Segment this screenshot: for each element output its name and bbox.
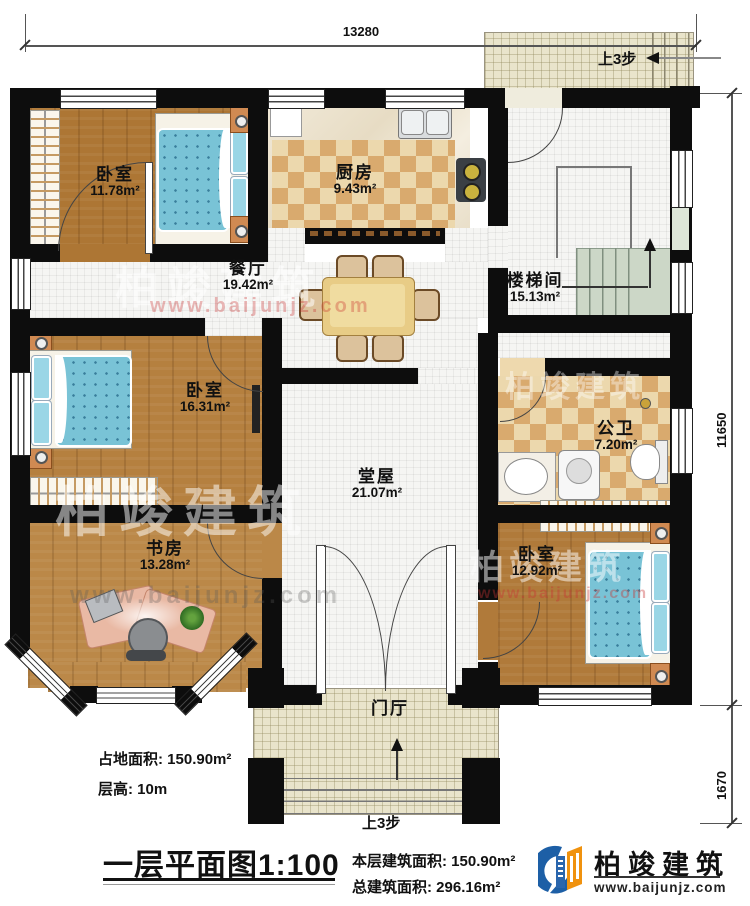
dim-line-right <box>731 93 733 823</box>
land-area-label: 占地面积: <box>98 751 163 768</box>
room-label-stairwell: 楼梯间 15.13m² <box>480 272 590 304</box>
window-bedroom3-south <box>538 687 652 706</box>
dim-right-lower-label: 1670 <box>714 748 729 800</box>
brand-url: www.baijunjz.com <box>594 880 727 895</box>
room-name: 卧室 <box>60 166 170 184</box>
room-area: 12.92m² <box>482 564 592 578</box>
floor-area-row: 本层建筑面积: 150.90m² <box>352 850 515 871</box>
room-name: 门厅 <box>348 700 432 718</box>
window-dining-west <box>11 258 31 310</box>
foyer-pillar-nw <box>248 668 284 708</box>
door-opening-bathroom <box>500 358 545 376</box>
dining-table-top <box>330 284 405 327</box>
sink-basin <box>401 110 424 135</box>
room-area: 9.43m² <box>300 182 410 196</box>
nightstand <box>650 663 670 687</box>
foyer-steps <box>283 778 467 814</box>
pillow <box>32 401 51 445</box>
wall-left <box>10 88 30 647</box>
room-area: 21.07m² <box>322 486 432 500</box>
lamp-icon <box>655 670 668 683</box>
pillow <box>652 552 669 602</box>
office-chair-back <box>126 650 166 661</box>
stove-burner-icon <box>463 183 481 201</box>
window-bedroom2-west <box>11 372 31 456</box>
dining-chair <box>336 334 368 362</box>
dim-ext-r2 <box>700 705 742 706</box>
wall-corner-ne <box>670 86 700 108</box>
hall-dining-opening <box>418 368 478 384</box>
dim-ext-top-right <box>696 14 697 52</box>
dim-ext-r3 <box>700 823 742 824</box>
lamp-icon <box>35 451 48 464</box>
room-label-foyer: 门厅 <box>348 700 432 718</box>
room-label-hall: 堂屋 21.07m² <box>322 468 432 500</box>
entry-door-leaf-right <box>446 545 456 694</box>
stove-burner-icon <box>463 163 481 181</box>
window-stairwell-east-a <box>671 150 693 208</box>
wall-bathroom-bedroom3 <box>498 505 670 523</box>
ceiling-lamp-icon <box>640 398 651 409</box>
entry-arrow-line <box>396 748 398 780</box>
wall-dining-hall <box>268 368 418 384</box>
steps-arrow-left-icon <box>646 52 659 64</box>
dim-line-top <box>25 45 697 47</box>
door-opening-stairwell <box>505 88 562 108</box>
bathroom-sink <box>504 458 548 495</box>
plant-icon <box>180 606 204 630</box>
stair-direction-line <box>649 250 651 288</box>
dining-chair <box>412 289 440 321</box>
lamp-icon <box>655 527 668 540</box>
room-name: 楼梯间 <box>480 272 590 290</box>
lamp-icon <box>235 115 248 128</box>
room-area: 11.78m² <box>60 184 170 198</box>
pillow <box>652 603 669 653</box>
nightstand <box>230 216 250 243</box>
floor-area-label: 本层建筑面积: <box>352 853 447 870</box>
kitchen-cabinet <box>270 107 302 137</box>
room-name: 卧室 <box>482 546 592 564</box>
dining-chair <box>372 334 404 362</box>
title-underline-thin <box>103 884 335 885</box>
window-kitchen-north-a <box>268 89 325 109</box>
pillow <box>32 356 51 400</box>
kitchen-threshold <box>310 231 440 236</box>
door-opening-study <box>262 523 282 578</box>
room-name: 厨房 <box>300 164 410 182</box>
dim-ext-r1 <box>700 93 742 94</box>
room-label-bedroom2: 卧室 16.31m² <box>150 382 260 414</box>
bed-sheet-fold <box>219 128 231 228</box>
kitchen-pass-right <box>445 228 488 262</box>
floor-height-value: 10m <box>137 781 167 798</box>
land-area-value: 150.90m² <box>167 751 231 768</box>
wall-stairwell-west-a <box>488 106 508 226</box>
room-name: 堂屋 <box>322 468 432 486</box>
room-area: 16.31m² <box>150 400 260 414</box>
window-bathroom-east <box>671 408 693 474</box>
stair-up-arrow-icon <box>644 238 656 251</box>
floor-area-value: 150.90m² <box>451 853 515 870</box>
room-area: 15.13m² <box>480 290 590 304</box>
door-opening-bedroom2 <box>205 318 262 336</box>
lamp-icon <box>235 225 248 238</box>
window-bay-center <box>96 687 176 704</box>
nightstand <box>650 520 670 544</box>
stairwell-opening-floor <box>488 226 508 268</box>
washer-drum-icon <box>566 458 592 484</box>
foyer-pillar-ne <box>462 668 500 708</box>
total-area-value: 296.16m² <box>436 879 500 896</box>
room-label-bedroom3: 卧室 12.92m² <box>482 546 592 578</box>
room-label-kitchen: 厨房 9.43m² <box>300 164 410 196</box>
land-area-row: 占地面积: 150.90m² <box>98 748 231 769</box>
total-area-label: 总建筑面积: <box>352 879 432 896</box>
room-label-study: 书房 13.28m² <box>110 540 220 572</box>
entry-up-arrow-icon <box>391 738 403 751</box>
steps-note-bottom: 上3步 <box>362 812 400 833</box>
lamp-icon <box>35 337 48 350</box>
window-kitchen-north-b <box>385 89 465 109</box>
dim-ext-top-left <box>25 14 26 52</box>
wall-bathroom-north <box>545 358 670 376</box>
room-name: 书房 <box>110 540 220 558</box>
room-label-bathroom: 公卫 7.20m² <box>561 420 671 452</box>
steps-leader-line <box>659 57 721 59</box>
brand-divider <box>594 876 720 878</box>
floor-height-label: 层高: <box>98 781 133 798</box>
title-underline-thick <box>103 878 335 881</box>
dim-right-upper-label: 11650 <box>714 382 729 448</box>
bed-sheet-fold <box>640 550 651 655</box>
nightstand <box>230 106 250 133</box>
sink-basin <box>426 110 449 135</box>
stair-railing <box>556 166 632 258</box>
room-label-bedroom1: 卧室 11.78m² <box>60 166 170 198</box>
room-area: 7.20m² <box>561 438 671 452</box>
foyer-pillar-sw <box>248 758 284 824</box>
window-stairwell-east-b <box>671 262 693 314</box>
bed-sheet-fold <box>55 355 67 443</box>
room-area: 19.42m² <box>193 278 303 292</box>
kitchen-pass-left <box>268 228 305 262</box>
steps-note-top: 上3步 <box>598 48 636 69</box>
floor-plan-canvas: 13280 11650 1670 上3步 <box>0 0 750 906</box>
room-area: 13.28m² <box>110 558 220 572</box>
wall-dining-bedroom2 <box>10 318 208 336</box>
wardrobe <box>30 110 60 245</box>
foyer-pillar-se <box>462 758 500 824</box>
hall-corridor <box>488 333 670 358</box>
floor-height-row: 层高: 10m <box>98 778 167 799</box>
stair-landing-sill <box>672 208 689 250</box>
wall-stairwell-south <box>488 315 670 333</box>
window-bedroom1-north <box>60 89 157 109</box>
room-name: 餐厅 <box>193 260 303 278</box>
wall-bedroom2-study <box>10 505 262 523</box>
room-name: 公卫 <box>561 420 671 438</box>
wall-bedroom1-kitchen <box>248 106 268 246</box>
total-area-row: 总建筑面积: 296.16m² <box>352 876 500 897</box>
room-name: 卧室 <box>150 382 260 400</box>
dim-top-label: 13280 <box>325 24 397 39</box>
wall-bedroom2-hall <box>262 318 282 523</box>
room-label-dining: 餐厅 19.42m² <box>193 260 303 292</box>
brand-logo-icon <box>538 840 590 898</box>
